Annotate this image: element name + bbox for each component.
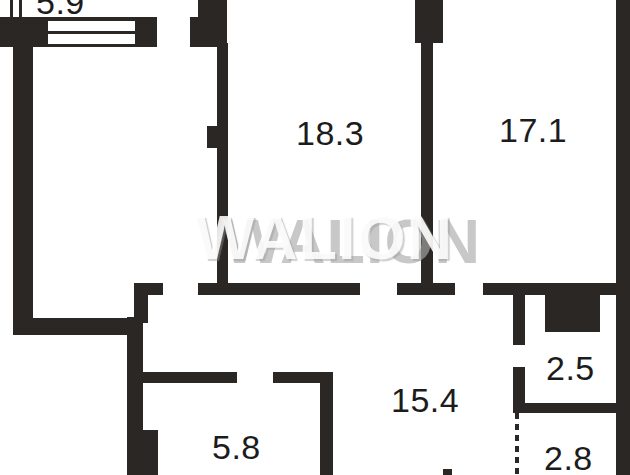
railing-line — [19, 0, 22, 18]
wall-right-outer — [616, 0, 630, 475]
wall-lower-left-step — [143, 430, 158, 475]
area-label-room1: 18.3 — [296, 116, 364, 150]
area-label-room58: 5.8 — [212, 430, 261, 464]
wall-wc-upper — [513, 295, 525, 345]
area-label-room2: 17.1 — [499, 113, 567, 147]
wall-bottom-stub — [443, 469, 452, 475]
wall-lower-left-vertical — [127, 317, 143, 475]
wall-room2-bottom — [483, 283, 616, 295]
area-label-wc: 2.5 — [546, 351, 595, 385]
wall-wc-bath-divider — [513, 403, 616, 413]
wall-stub-hall-door — [137, 283, 163, 295]
wall-center-left-pier — [207, 126, 217, 148]
area-label-hallway: 15.4 — [391, 383, 459, 417]
wall-bottom-left — [13, 318, 143, 335]
wall-center-bottom-seg — [397, 283, 455, 295]
floor-plan: 5.9 18.3 17.1 15.4 5.8 2.5 2.8 WALION WA… — [0, 0, 630, 475]
wall-left-outer — [13, 43, 33, 318]
wall-center-top-head — [415, 0, 443, 43]
wall-room1-bottom — [198, 283, 360, 295]
dashed-opening-line — [515, 413, 519, 475]
wall-room58-right — [320, 372, 333, 475]
railing-line — [10, 0, 13, 18]
area-label-bath: 2.8 — [544, 441, 593, 475]
area-label-balcony: 5.9 — [36, 0, 85, 19]
window-divider — [48, 31, 135, 34]
vent-shaft-block — [545, 295, 600, 332]
wall-room58-top-left — [143, 372, 237, 383]
watermark: WALION — [195, 206, 453, 269]
wall-center-left-top — [198, 0, 227, 18]
